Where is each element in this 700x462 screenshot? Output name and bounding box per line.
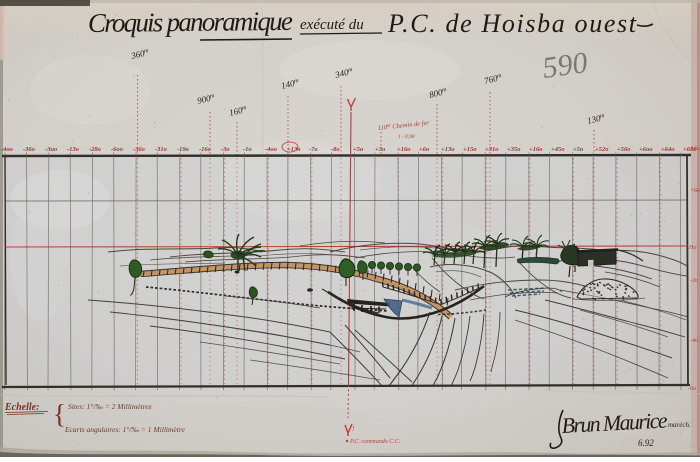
svg-text:-4oo: -4oo — [1, 146, 14, 153]
svg-text:+16o: +16o — [397, 146, 411, 153]
svg-text:-1o: -1o — [243, 146, 252, 153]
svg-text:6.92: 6.92 — [638, 438, 654, 448]
svg-text:+15o: +15o — [463, 146, 477, 153]
svg-text:+31o: +31o — [485, 146, 499, 153]
svg-text:+64o: +64o — [661, 146, 675, 153]
svg-text:P.C. commando C.C.: P.C. commando C.C. — [349, 439, 400, 445]
svg-text:+52o: +52o — [595, 146, 609, 153]
svg-text:-19o: -19o — [177, 146, 190, 153]
svg-text:-28o: -28o — [89, 146, 102, 153]
svg-text:Echelle:: Echelle: — [4, 402, 39, 413]
svg-text:590: 590 — [540, 46, 589, 85]
svg-text:+3o: +3o — [375, 146, 386, 153]
svg-text:+6o: +6o — [690, 188, 700, 194]
svg-text:-3o: -3o — [221, 146, 230, 153]
svg-text:-16o: -16o — [199, 146, 212, 153]
svg-text:+5o: +5o — [573, 146, 584, 153]
svg-text:-13o: -13o — [67, 146, 80, 153]
svg-text:-7o: -7o — [309, 146, 318, 153]
svg-text:-6o: -6o — [688, 386, 696, 392]
svg-text:P.C. de Hoisba ouest: P.C. de Hoisba ouest — [387, 9, 637, 38]
svg-text:-31o: -31o — [155, 146, 168, 153]
svg-text:maréch.: maréch. — [668, 421, 691, 429]
svg-text:Ho: Ho — [688, 245, 696, 251]
svg-text:-8o: -8o — [331, 146, 340, 153]
svg-text:+5o: +5o — [353, 146, 364, 153]
svg-text:+35o: +35o — [507, 146, 521, 153]
svg-text:+45o: +45o — [551, 146, 565, 153]
svg-text:Sites: 1°/‰ = 2 Millimètres: Sites: 1°/‰ = 2 Millimètres — [68, 402, 152, 411]
svg-text:-36o: -36o — [23, 146, 36, 153]
svg-text:-36o: -36o — [133, 146, 146, 153]
svg-text:+56o: +56o — [617, 146, 631, 153]
svg-text:1 · 0,90: 1 · 0,90 — [398, 134, 415, 140]
svg-text:-6oo: -6oo — [111, 146, 124, 153]
svg-text:-4oo: -4oo — [265, 146, 278, 153]
svg-text:+16o: +16o — [529, 146, 543, 153]
svg-text:+6oo: +6oo — [639, 146, 653, 153]
svg-text:-3uo: -3uo — [45, 146, 58, 153]
svg-text:-2o: -2o — [690, 278, 698, 284]
svg-text:Ecarts angulaires: 1°/‰ = 1 Mi: Ecarts angulaires: 1°/‰ = 1 Millimètre — [64, 425, 185, 434]
svg-text:+6o: +6o — [419, 146, 430, 153]
svg-text:+13o: +13o — [441, 146, 455, 153]
svg-text:Croquis panoramique: Croquis panoramique — [88, 6, 293, 38]
svg-text:exécuté du: exécuté du — [300, 17, 364, 33]
svg-text:-4o: -4o — [690, 337, 698, 344]
svg-text:+6o: +6o — [690, 146, 700, 152]
